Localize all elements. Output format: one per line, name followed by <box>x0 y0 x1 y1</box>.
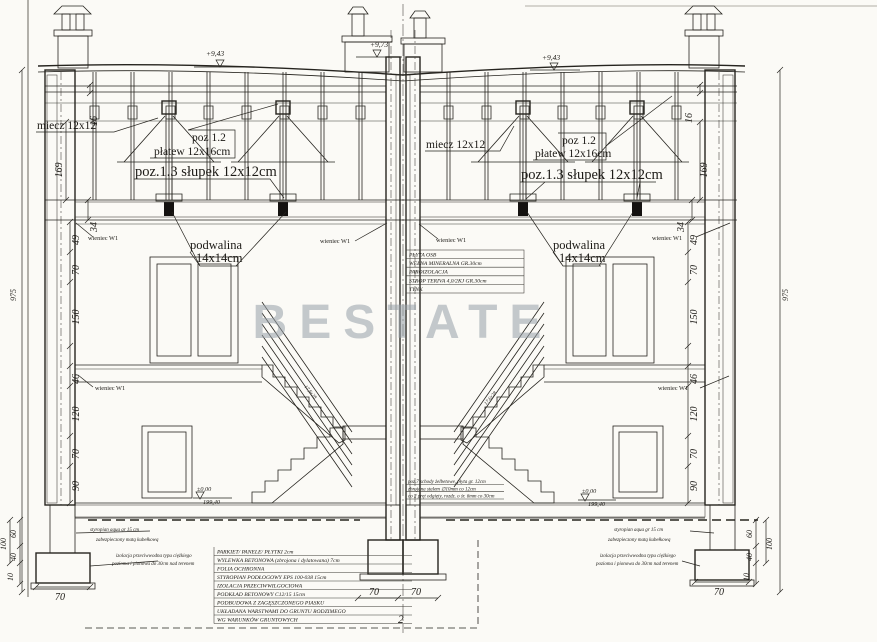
dim-footing-left: 60 <box>9 530 18 538</box>
ceiling-table-row: PŁYTA OSB <box>408 253 437 259</box>
dim-footing-total-right: 100 <box>765 538 774 550</box>
dim-attic-right: 34 <box>676 222 687 233</box>
section-drawing: BESTATE <box>0 0 877 642</box>
label-podwalina-size-left: 14x14cm <box>196 251 243 265</box>
level-eaves-right: +9,43 <box>542 53 560 62</box>
axis-label: 2 <box>398 614 404 626</box>
label-wieniec-6: wieniec W1 <box>658 385 688 392</box>
note-izo-left-1: izolacja przeciwwodna typu ciężkiego <box>116 554 192 559</box>
dim-left: 120 <box>71 407 82 422</box>
floor-table-row: STYROPIAN PODŁOGOWY EPS 100-038 15cm <box>217 575 326 581</box>
floor-table-row: PODBUDOWA Z ZAGĘSZCZONEGO PIASKU <box>216 601 325 607</box>
dim-left: 70 <box>71 265 82 275</box>
architectural-section-sheet: BESTATE <box>0 0 877 642</box>
label-miecz-right: miecz 12x12 <box>426 139 485 151</box>
level-zero-left: ±0,00 <box>197 486 212 493</box>
dim-right: 120 <box>689 407 700 422</box>
label-slupek-left: poz.1.3 słupek 12x12cm <box>135 164 277 180</box>
level-ridge: +9,73 <box>370 40 388 49</box>
stairs-note-line: co 2 pręt odgięty, rozdz. o śr. 6mm co 3… <box>408 495 495 500</box>
dim-left: 90 <box>71 481 82 491</box>
dim-right: 70 <box>689 449 700 459</box>
note-styro-right-1: styropian aqua gr 15 cm <box>614 528 663 533</box>
label-wieniec-3: wieniec W1 <box>436 237 466 244</box>
dim-left: 70 <box>71 449 82 459</box>
dim-right: 90 <box>689 481 700 491</box>
label-podwalina-size-right: 14x14cm <box>559 251 606 265</box>
dim-center-footing-a: 70 <box>369 587 379 598</box>
dim-footing-width-right: 70 <box>714 587 724 598</box>
label-podwalina-right: podwalina <box>553 238 606 252</box>
watermark-text: BESTATE <box>253 296 554 349</box>
label-miecz-left: miecz 12x12 <box>37 120 96 132</box>
label-podwalina-left: podwalina <box>190 238 243 252</box>
note-styro-left-2: zabezpieczony matą kubełkową <box>95 538 159 543</box>
dim-right: 70 <box>689 265 700 275</box>
label-poz12-right: poz 1.2 <box>562 135 596 147</box>
ceiling-table-row: TYNK <box>409 287 423 293</box>
stairs-note-line: poz.7 schody żelbetowe, płyta gr. 12cm <box>407 480 486 485</box>
label-wieniec-1: wieniec W1 <box>88 235 118 242</box>
level-zero-right: ±0,00 <box>582 488 597 495</box>
floor-table-row: WG WARUNKÓW GRUNTOWYCH <box>217 616 299 624</box>
label-poz12-left: poz 1.2 <box>192 132 226 144</box>
dim-left: 150 <box>71 310 82 325</box>
level-datum-right: 199,40 <box>588 501 606 508</box>
dim-footing-right: 10 <box>742 573 751 581</box>
dim-overall-left: 975 <box>9 289 18 301</box>
dim-right: 150 <box>689 310 700 325</box>
ceiling-table-row: PAROIZOLACJA <box>408 270 448 276</box>
dim-overall-right: 975 <box>781 289 790 301</box>
label-wieniec-4: wieniec W1 <box>652 235 682 242</box>
note-styro-left-1: styropian aqua gr 15 cm <box>90 528 139 533</box>
level-eaves-left: +9,43 <box>206 49 224 58</box>
label-wieniec-5: wieniec W1 <box>95 385 125 392</box>
note-izo-left-2: pozioma i pionowa do 30cm nad terenem <box>111 562 195 567</box>
level-datum-left: 199,40 <box>203 499 221 506</box>
ceiling-table-row: STROP TERIVA 4,0/2KJ GR.30cm <box>409 278 487 284</box>
dim-right: 49 <box>689 235 700 245</box>
label-platew-left: płatew 12x16cm <box>154 146 230 158</box>
dim-roof-left: 16 <box>89 116 100 126</box>
label-platew-right: płatew 12x16cm <box>535 148 611 160</box>
floor-table-row: PODKŁAD BETONOWY C12/15 15cm <box>216 592 305 598</box>
dim-footing-left: 10 <box>6 573 15 581</box>
dim-center-footing-b: 70 <box>411 587 421 598</box>
dim-footing-total-left: 100 <box>0 538 8 550</box>
dim-roof-right: 16 <box>684 113 695 123</box>
label-slupek-right: poz.1.3 słupek 12x12cm <box>521 167 663 183</box>
floor-table-row: UKŁADANA WARSTWAMI DO GRUNTU RODZIMEGO <box>217 609 346 615</box>
note-styro-right-2: zabezpieczony matą kubełkową <box>607 538 671 543</box>
floor-table-row: FOLIA OCHRONNA <box>216 567 265 573</box>
ceiling-table-row: WEŁNA MINERALNA GR.30cm <box>409 261 482 267</box>
dim-footing-right: 60 <box>745 530 754 538</box>
floor-table-row: PARKIET/ PANELE/ PŁYTKI 2cm <box>216 550 293 556</box>
label-wieniec-2: wieniec W1 <box>320 238 350 245</box>
dim-left: 49 <box>71 235 82 245</box>
note-izo-right-1: izolacja przeciwwodna typu ciężkiego <box>600 554 676 559</box>
dim-right: 46 <box>689 374 700 384</box>
floor-table-row: IZOLACJA PRZECIWWILGOCIOWA <box>216 584 303 590</box>
note-izo-right-2: pozioma i pionowa do 30cm nad terenem <box>595 562 679 567</box>
stairs-note-line: zbrojona stalem ∅10mm co 12cm <box>407 486 476 492</box>
dim-knee-left: 169 <box>54 163 65 178</box>
dim-knee-right: 169 <box>699 163 710 178</box>
dim-footing-width-left: 70 <box>55 592 65 603</box>
dim-footing-left: 40 <box>9 553 18 561</box>
dim-left: 46 <box>71 374 82 384</box>
floor-table-row: WYLEWKA BETONOWA (zbrojona i dylatowana)… <box>217 557 340 564</box>
dim-footing-right: 40 <box>745 553 754 561</box>
dim-attic-left: 34 <box>89 222 100 233</box>
